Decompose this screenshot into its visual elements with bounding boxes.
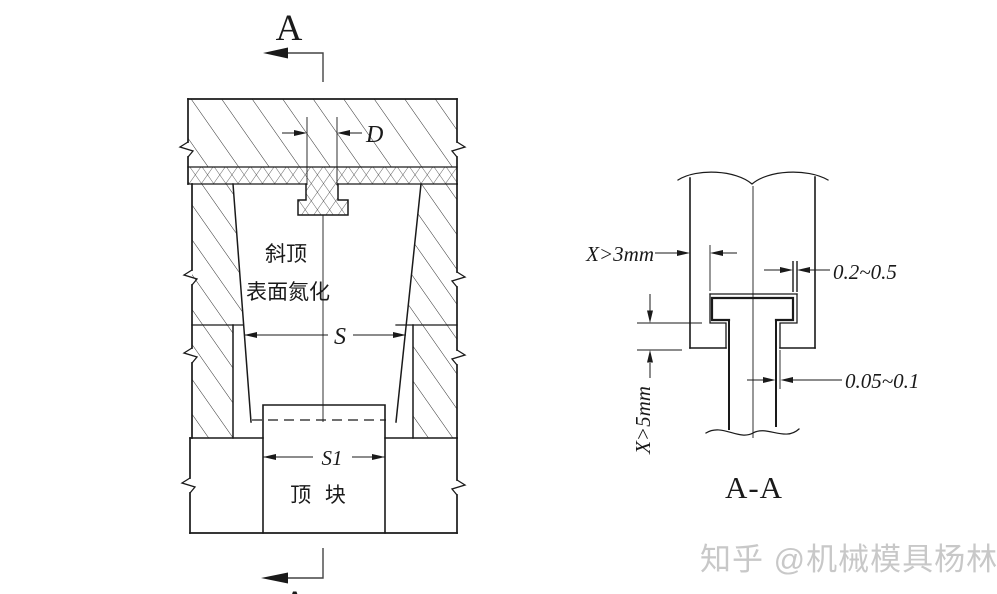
dimension-head-clearance: 0.2~0.5 [764, 260, 897, 292]
top-break-wave [678, 172, 828, 184]
section-arrow-bottom: A [261, 548, 323, 594]
section-arrow-top: A [263, 8, 323, 82]
watermark-text: 知乎 @机械模具杨林 [700, 542, 997, 577]
dim-d-label: D [365, 122, 383, 148]
section-view-title: A-A [725, 470, 783, 505]
section-view-a-a: X>3mm 0.2~0.5 0.05~0.1 X>5mm A-A [585, 172, 919, 505]
dim-head-clearance-label: 0.2~0.5 [833, 260, 897, 284]
dimension-s1: S1 [263, 446, 385, 470]
section-label-bottom: A [282, 584, 309, 594]
dim-s-label: S [334, 324, 346, 350]
lifter-rod [729, 320, 776, 429]
dim-stem-clearance-label: 0.05~0.1 [845, 369, 919, 393]
hatched-top-plate [188, 99, 457, 167]
section-label-top: A [276, 8, 303, 49]
lifter-mold-drawing: A A D S S1 斜顶 表 [0, 0, 997, 594]
lifter-t-foot [712, 298, 793, 320]
technical-drawing-canvas: A A D S S1 斜顶 表 [0, 0, 997, 594]
dimension-s: S [244, 324, 406, 350]
dimension-stem-clearance: 0.05~0.1 [747, 350, 919, 393]
front-view: A A D S S1 斜顶 表 [180, 8, 465, 594]
lifter-nitriding-note: 表面氮化 [246, 281, 330, 304]
section-arrowhead-icon [261, 573, 288, 584]
bottom-break-wave [706, 429, 799, 435]
section-arrowhead-icon [263, 48, 288, 59]
dimension-x5mm: X>5mm [631, 294, 702, 455]
dimension-x3mm: X>3mm [585, 242, 737, 291]
lifter-label: 斜顶 [265, 243, 307, 266]
dim-s1-label: S1 [322, 446, 343, 470]
ejector-block-label: 顶 块 [290, 484, 350, 507]
dim-x5mm-label: X>5mm [631, 386, 655, 455]
dim-x3mm-label: X>3mm [585, 242, 654, 266]
